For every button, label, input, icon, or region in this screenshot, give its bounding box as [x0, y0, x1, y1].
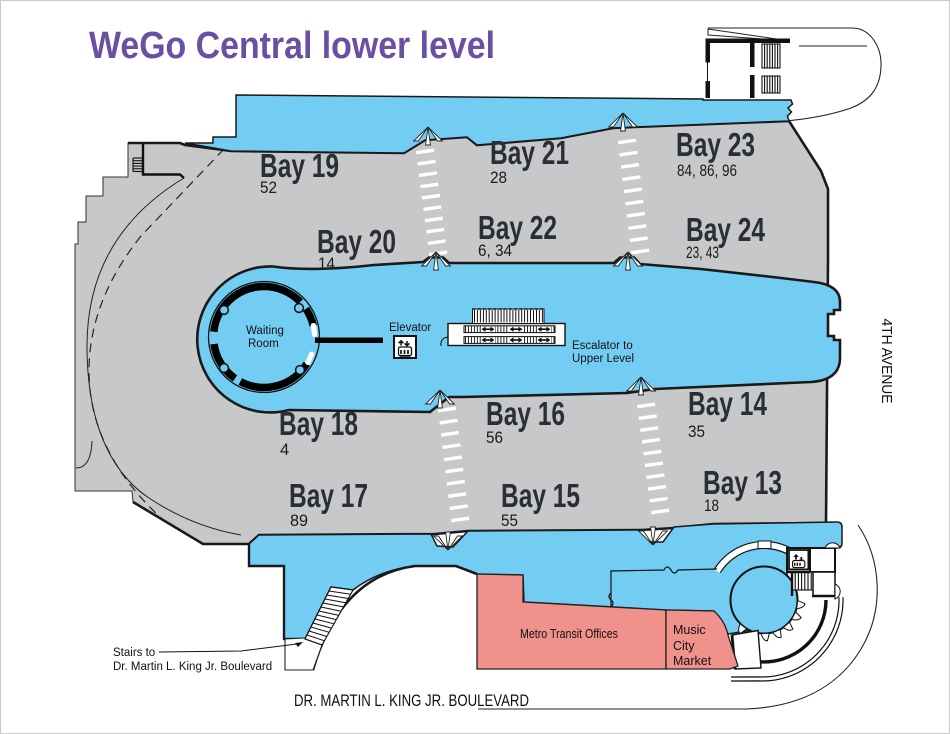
svg-text:Escalator to: Escalator to	[572, 340, 633, 352]
svg-text:14: 14	[318, 255, 335, 273]
svg-text:4: 4	[280, 441, 289, 459]
svg-text:Room: Room	[248, 338, 279, 350]
svg-text:35: 35	[688, 423, 705, 441]
svg-text:DR. MARTIN L. KING JR. BOULEVA: DR. MARTIN L. KING JR. BOULEVARD	[294, 692, 529, 710]
svg-text:Elevator: Elevator	[389, 322, 431, 334]
svg-text:Bay 23: Bay 23	[676, 127, 755, 164]
svg-text:Market: Market	[673, 654, 712, 668]
svg-text:City: City	[673, 639, 695, 653]
svg-text:56: 56	[486, 429, 503, 447]
svg-text:Bay 18: Bay 18	[279, 406, 358, 443]
svg-text:Metro Transit Offices: Metro Transit Offices	[520, 627, 618, 641]
svg-text:Bay 17: Bay 17	[289, 478, 368, 515]
svg-text:4TH AVENUE: 4TH AVENUE	[878, 319, 895, 404]
svg-text:18: 18	[704, 497, 719, 515]
svg-text:WeGo Central lower level: WeGo Central lower level	[89, 25, 495, 67]
svg-text:6, 34: 6, 34	[478, 242, 512, 260]
svg-text:52: 52	[260, 179, 277, 197]
svg-text:Stairs to: Stairs to	[113, 647, 155, 659]
svg-text:23, 43: 23, 43	[686, 244, 719, 262]
svg-text:Bay 16: Bay 16	[486, 396, 565, 433]
svg-text:Upper Level: Upper Level	[572, 353, 634, 365]
svg-text:Waiting: Waiting	[246, 325, 284, 337]
svg-text:55: 55	[501, 512, 518, 530]
svg-text:Bay 15: Bay 15	[501, 478, 580, 515]
svg-text:Dr. Martin L. King Jr. Bouleva: Dr. Martin L. King Jr. Boulevard	[113, 661, 272, 673]
svg-text:Bay 14: Bay 14	[688, 386, 767, 423]
svg-text:Music: Music	[673, 623, 706, 637]
svg-text:84, 86, 96: 84, 86, 96	[677, 162, 737, 180]
svg-text:Bay 21: Bay 21	[490, 135, 569, 172]
svg-text:89: 89	[290, 512, 308, 530]
svg-text:28: 28	[490, 169, 507, 187]
